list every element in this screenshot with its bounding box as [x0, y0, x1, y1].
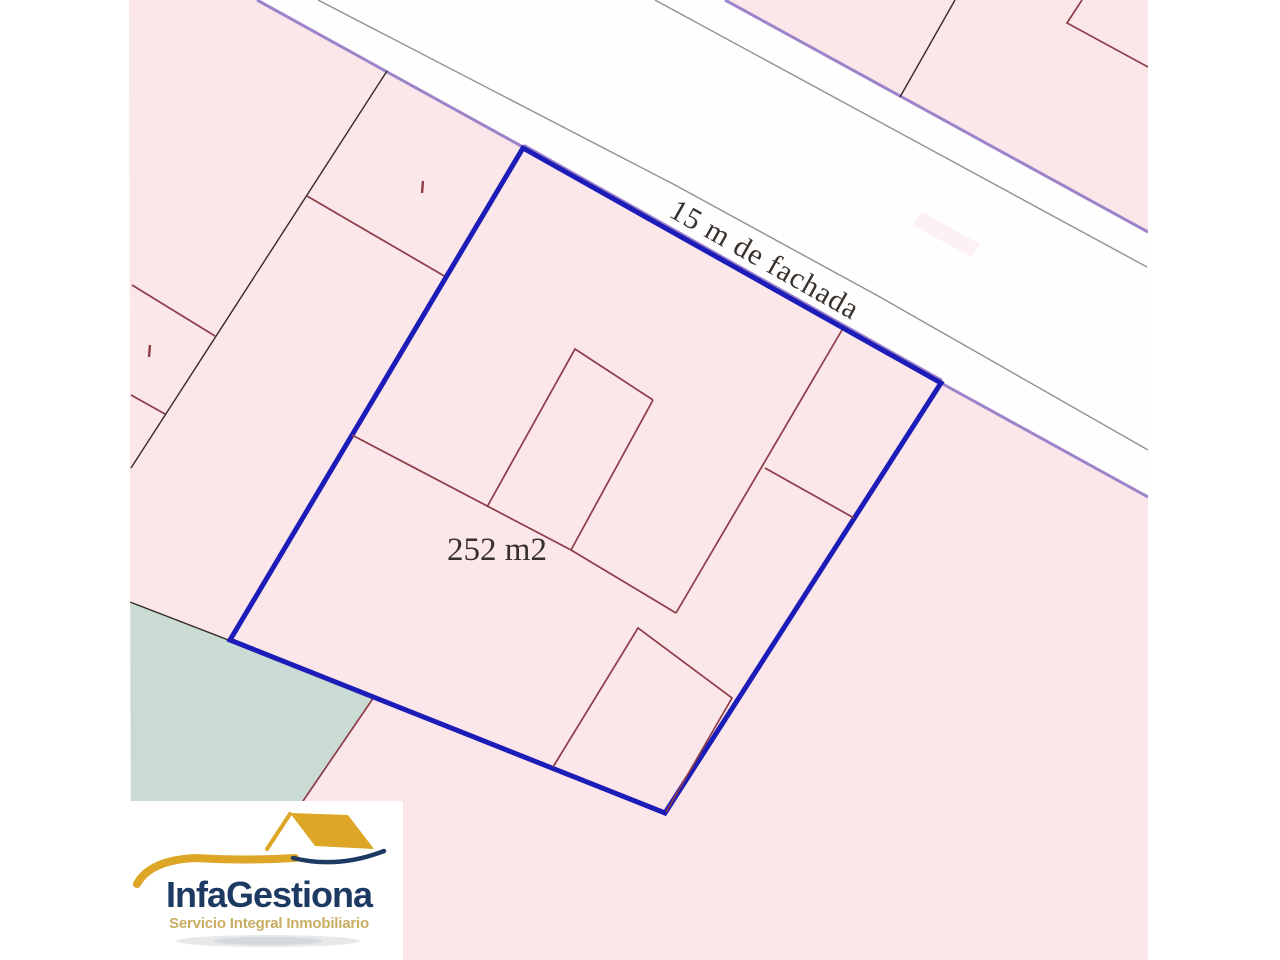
logo-shadow [213, 937, 323, 945]
boundary-tick [422, 181, 423, 193]
logo-tagline: Servicio Integral Inmobiliario [169, 915, 369, 932]
boundary-tick [149, 345, 150, 357]
agency-logo: InfaGestiona Servicio Integral Inmobilia… [129, 801, 403, 960]
logo-title: InfaGestiona [166, 874, 374, 915]
area-label: 252 m2 [447, 532, 547, 568]
cadastral-map: 15 m de fachada 252 m2 InfaGestiona Serv… [0, 0, 1280, 960]
